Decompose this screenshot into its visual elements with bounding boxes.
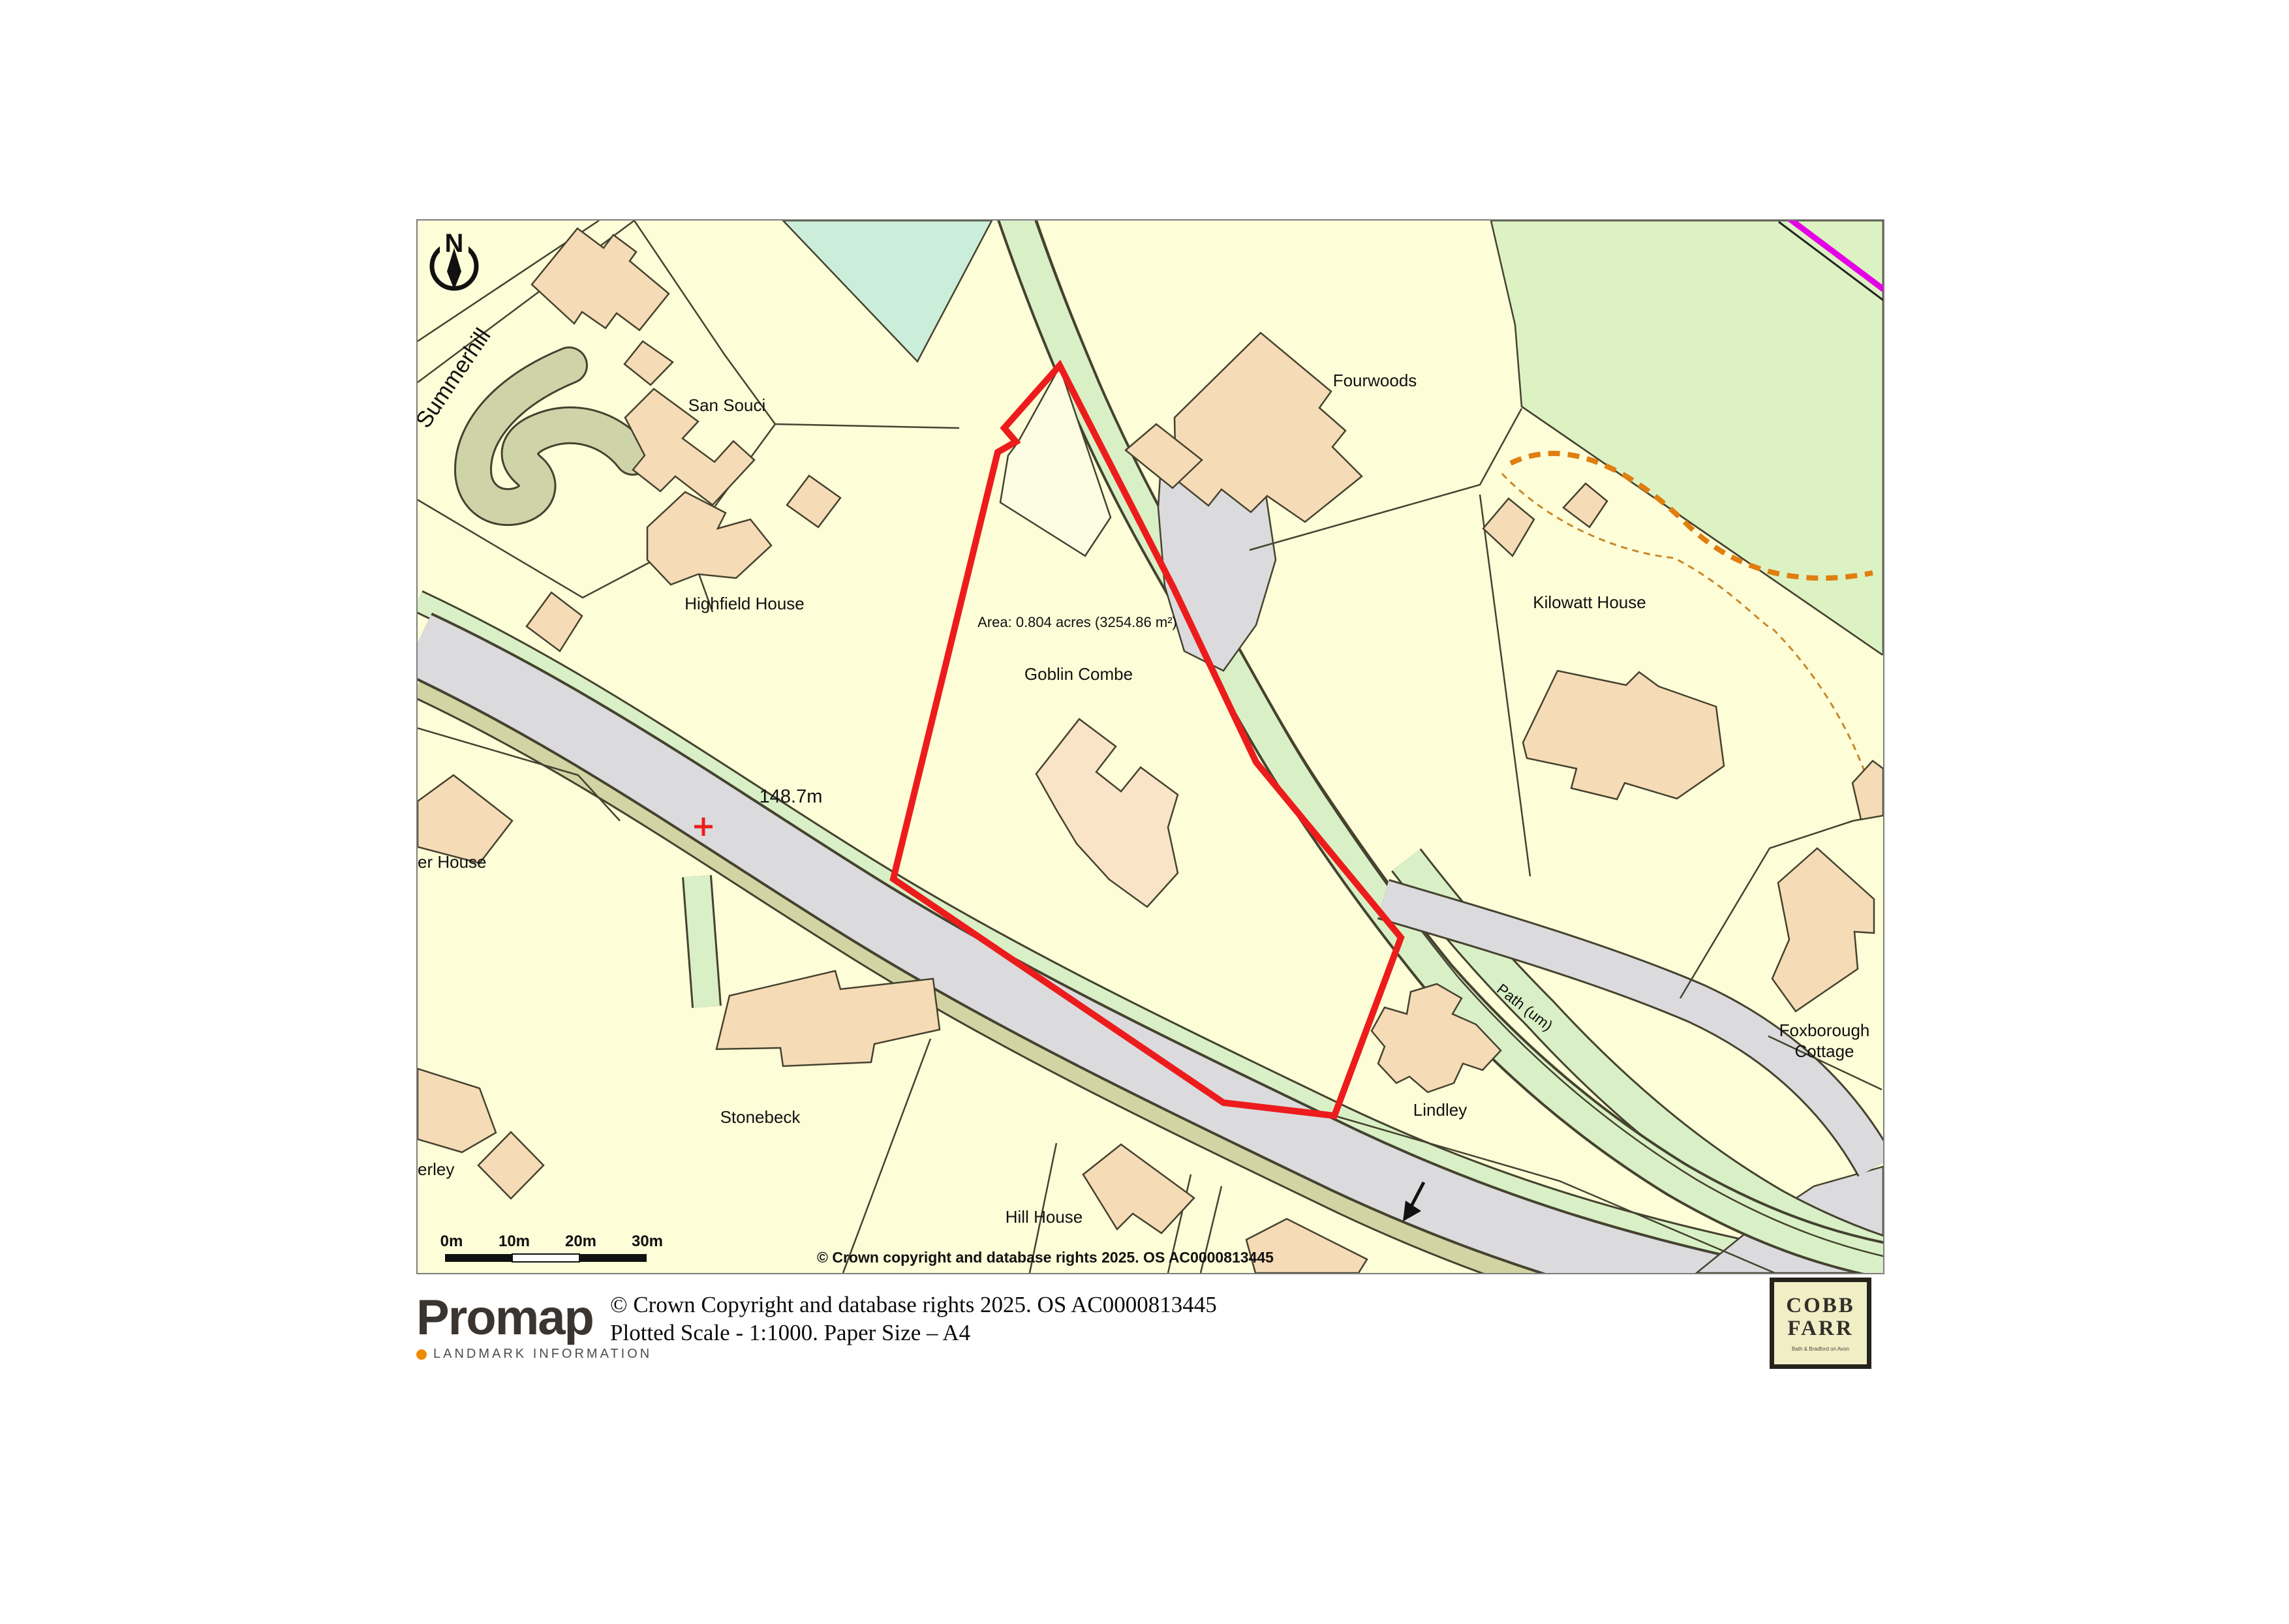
- scale-tick-0: 0m: [440, 1233, 463, 1250]
- label-plot-area: Area: 0.804 acres (3254.86 m²): [977, 614, 1177, 630]
- label-lindley: Lindley: [1413, 1100, 1467, 1120]
- scale-seg-black: [579, 1254, 647, 1262]
- label-stonebeck: Stonebeck: [720, 1107, 801, 1127]
- scale-seg-black: [445, 1254, 512, 1262]
- map-copyright: © Crown copyright and database rights 20…: [817, 1249, 1274, 1266]
- landmark-dot-icon: [416, 1349, 427, 1360]
- plotted-map-page: N Summerhill San Souci Highfield House F…: [0, 0, 2289, 1624]
- label-fourwoods: Fourwoods: [1333, 371, 1417, 390]
- scale-seg-white: [512, 1254, 579, 1262]
- drive-fill: [697, 876, 707, 1007]
- label-goblin-combe: Goblin Combe: [1024, 664, 1133, 684]
- label-foxborough-2: Cottage: [1794, 1041, 1854, 1061]
- scale-tick-10: 10m: [499, 1233, 530, 1250]
- footer-copyright-line: © Crown Copyright and database rights 20…: [610, 1291, 1217, 1319]
- os-map: N Summerhill San Souci Highfield House F…: [418, 221, 1883, 1273]
- label-hill-house: Hill House: [1006, 1207, 1083, 1227]
- cobb-farr-tagline: Bath & Bradford on Avon: [1792, 1346, 1849, 1352]
- label-san-souci: San Souci: [688, 395, 766, 415]
- footer-scale-line: Plotted Scale - 1:1000. Paper Size – A4: [610, 1319, 1217, 1347]
- label-foxborough-1: Foxborough: [1779, 1020, 1870, 1040]
- map-panel: N Summerhill San Souci Highfield House F…: [416, 219, 1884, 1274]
- landmark-information-label: LANDMARK INFORMATION: [433, 1347, 652, 1362]
- cobb-line: COBB: [1786, 1295, 1855, 1317]
- scale-tick-30: 30m: [632, 1233, 663, 1250]
- cobb-farr-logo: COBB FARR Bath & Bradford on Avon: [1770, 1278, 1871, 1369]
- stonebeck-drive: [697, 876, 707, 1007]
- farr-line: FARR: [1787, 1317, 1853, 1340]
- north-letter: N: [445, 229, 464, 258]
- label-erley: erley: [418, 1159, 454, 1179]
- label-highfield-house: Highfield House: [684, 594, 805, 613]
- label-spot-height: 148.7m: [760, 786, 823, 807]
- label-er-house: er House: [418, 852, 487, 872]
- label-kilowatt-house: Kilowatt House: [1533, 592, 1646, 612]
- scale-tick-20: 20m: [565, 1233, 596, 1250]
- footer-text: © Crown Copyright and database rights 20…: [610, 1291, 1217, 1347]
